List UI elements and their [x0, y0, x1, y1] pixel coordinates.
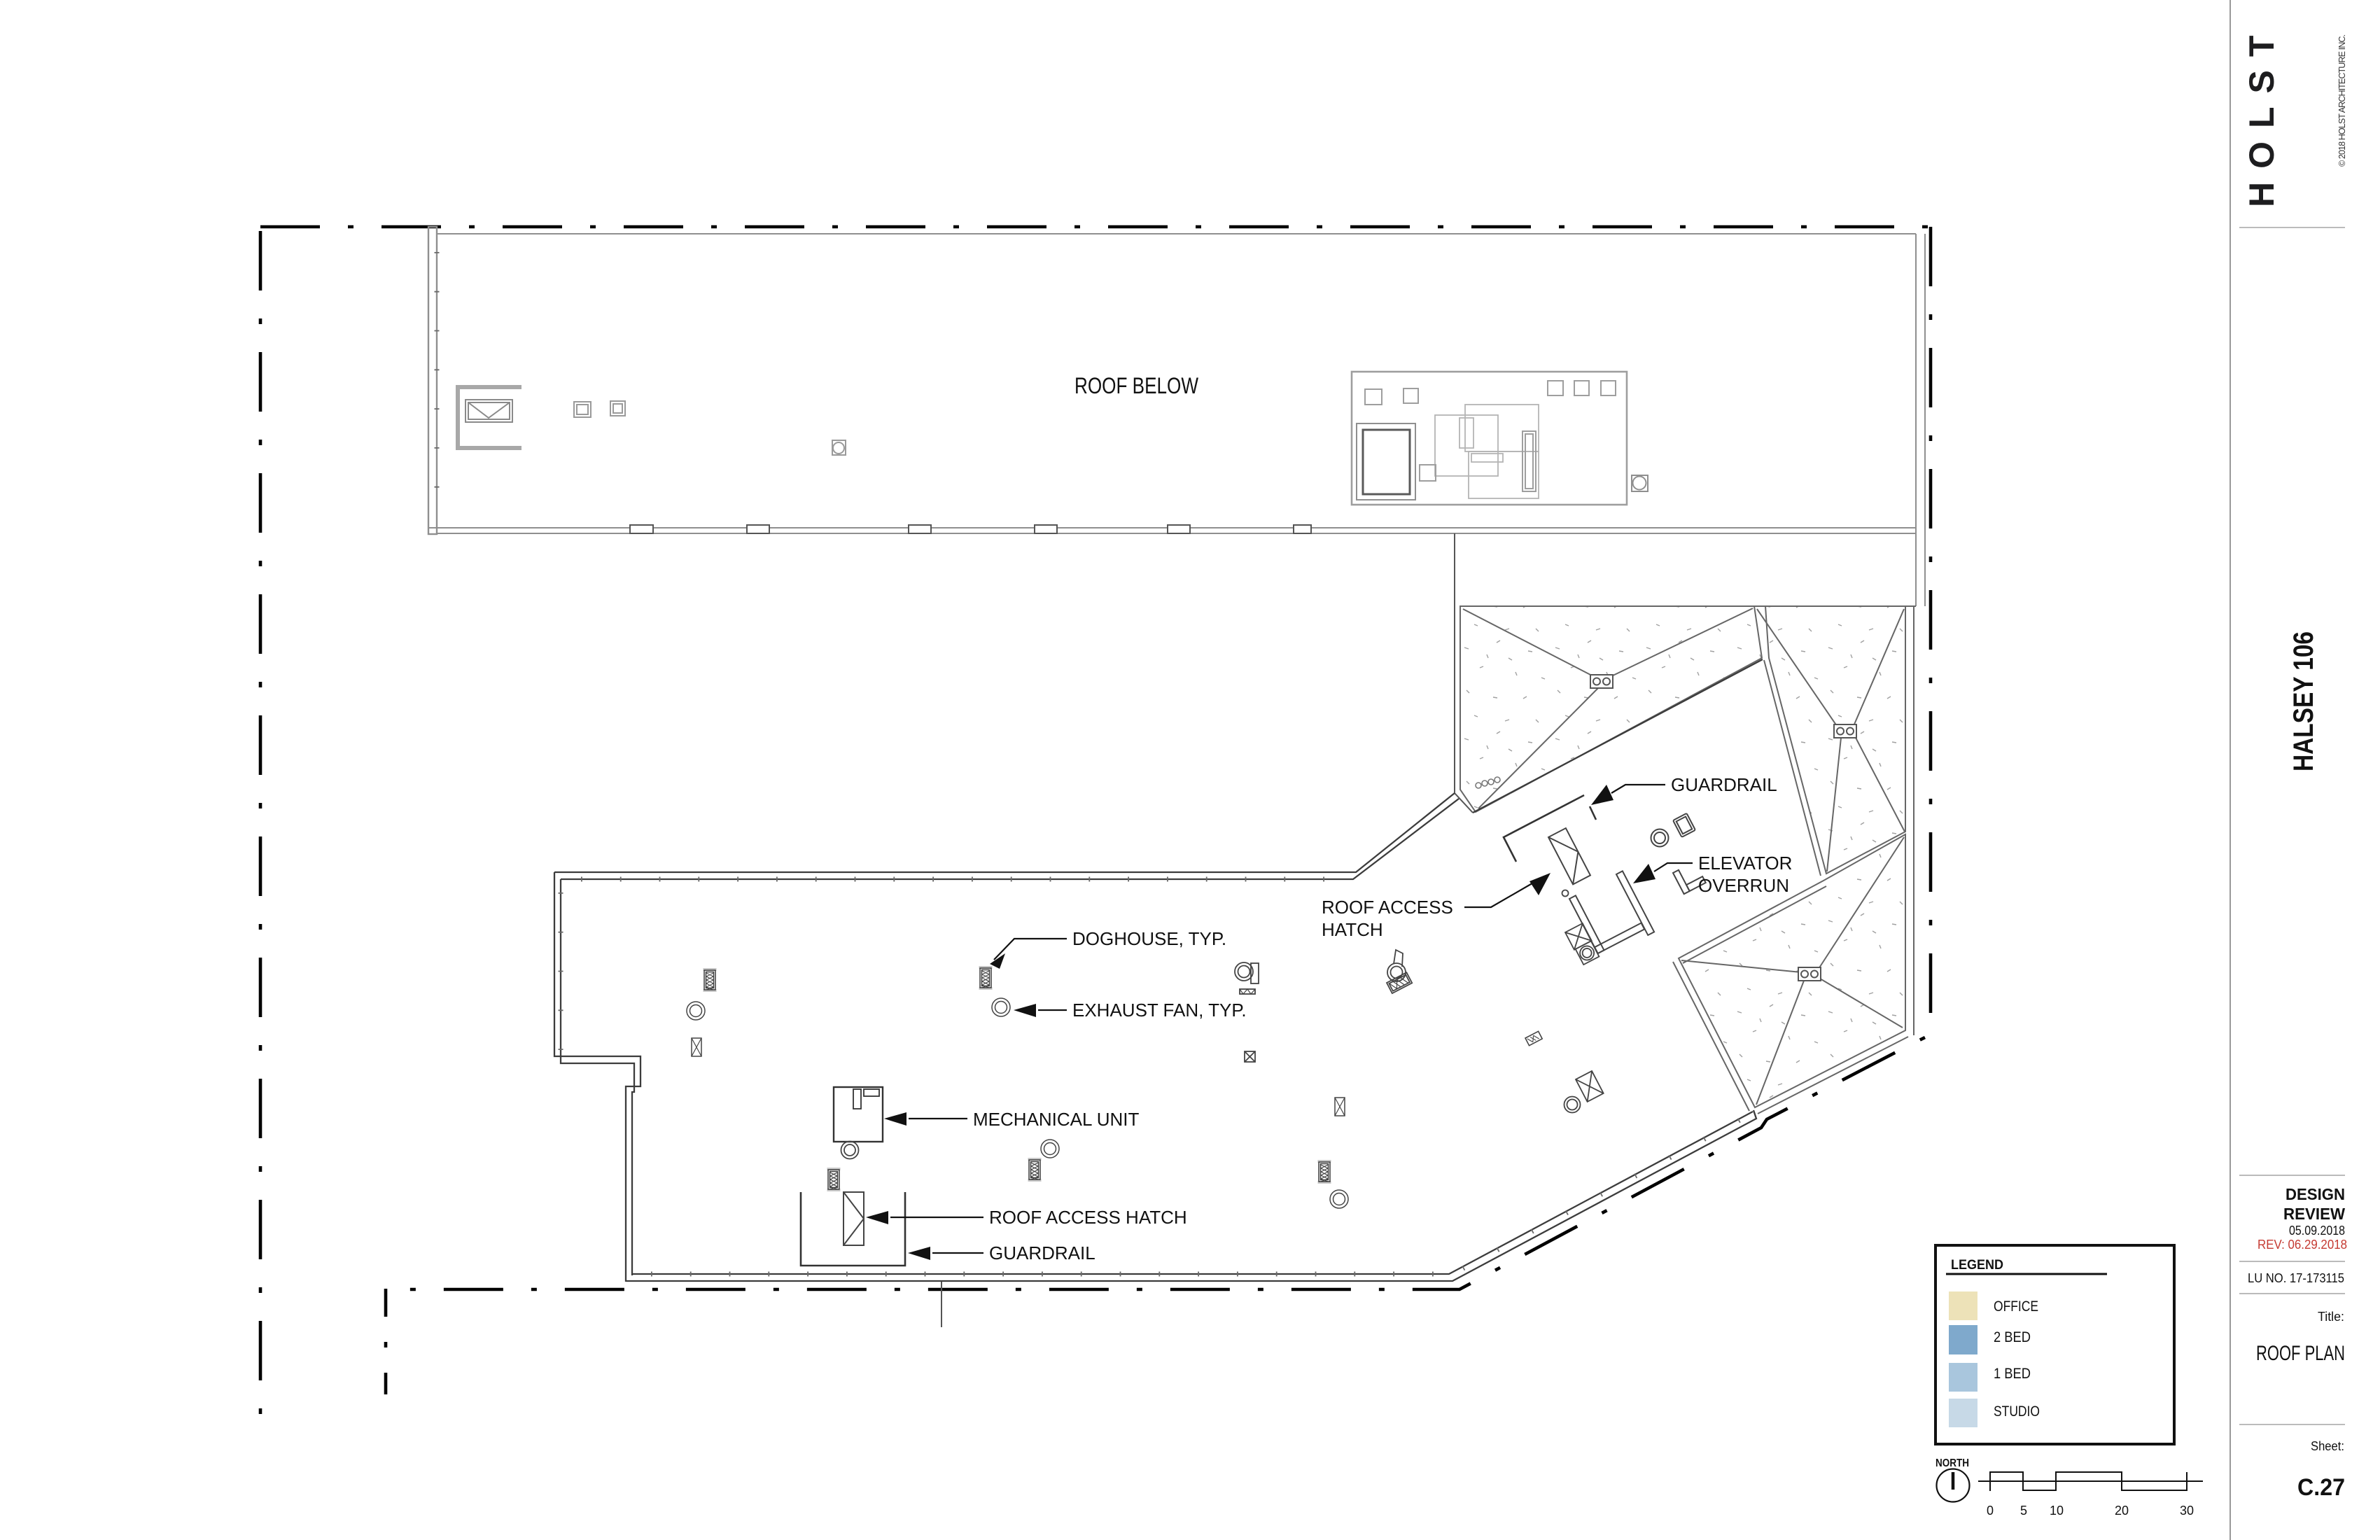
svg-text:LEGEND: LEGEND [1951, 1258, 2003, 1273]
svg-text:DESIGN: DESIGN [2285, 1185, 2345, 1203]
svg-text:0: 0 [1987, 1504, 1994, 1518]
svg-text:Title:: Title: [2318, 1310, 2344, 1324]
svg-text:HATCH: HATCH [1322, 919, 1383, 940]
svg-text:30: 30 [2180, 1504, 2194, 1518]
svg-text:10: 10 [2050, 1504, 2064, 1518]
svg-text:REV: 06.29.2018: REV: 06.29.2018 [2257, 1238, 2347, 1252]
svg-text:STUDIO: STUDIO [1994, 1403, 2040, 1420]
svg-text:OVERRUN: OVERRUN [1698, 875, 1789, 896]
svg-text:2 BED: 2 BED [1994, 1329, 2031, 1345]
svg-text:DOGHOUSE, TYP.: DOGHOUSE, TYP. [1072, 928, 1226, 949]
svg-text:© 2018 HOLST ARCHITECTURE INC.: © 2018 HOLST ARCHITECTURE INC. [2337, 34, 2347, 167]
svg-text:LU NO. 17-173115: LU NO. 17-173115 [2248, 1271, 2344, 1285]
svg-text:Sheet:: Sheet: [2311, 1439, 2344, 1453]
svg-text:HOLST: HOLST [2242, 22, 2281, 207]
svg-text:GUARDRAIL: GUARDRAIL [989, 1242, 1095, 1263]
svg-text:MECHANICAL UNIT: MECHANICAL UNIT [973, 1109, 1140, 1130]
svg-text:ROOF ACCESS HATCH: ROOF ACCESS HATCH [989, 1207, 1187, 1228]
svg-text:ROOF BELOW: ROOF BELOW [1074, 373, 1199, 398]
svg-text:REVIEW: REVIEW [2283, 1205, 2345, 1223]
svg-text:ELEVATOR: ELEVATOR [1698, 853, 1792, 874]
svg-text:C.27: C.27 [2297, 1474, 2345, 1501]
svg-text:NORTH: NORTH [1935, 1457, 1969, 1469]
svg-text:5: 5 [2020, 1504, 2027, 1518]
svg-text:EXHAUST FAN, TYP.: EXHAUST FAN, TYP. [1072, 1000, 1247, 1021]
svg-text:GUARDRAIL: GUARDRAIL [1671, 774, 1777, 795]
svg-text:HALSEY 106: HALSEY 106 [2288, 631, 2319, 771]
svg-text:ROOF PLAN: ROOF PLAN [2256, 1342, 2345, 1365]
svg-text:05.09.2018: 05.09.2018 [2289, 1224, 2345, 1238]
svg-text:20: 20 [2115, 1504, 2129, 1518]
svg-text:1 BED: 1 BED [1994, 1366, 2031, 1382]
svg-text:OFFICE: OFFICE [1994, 1298, 2038, 1315]
svg-text:ROOF ACCESS: ROOF ACCESS [1322, 897, 1453, 918]
